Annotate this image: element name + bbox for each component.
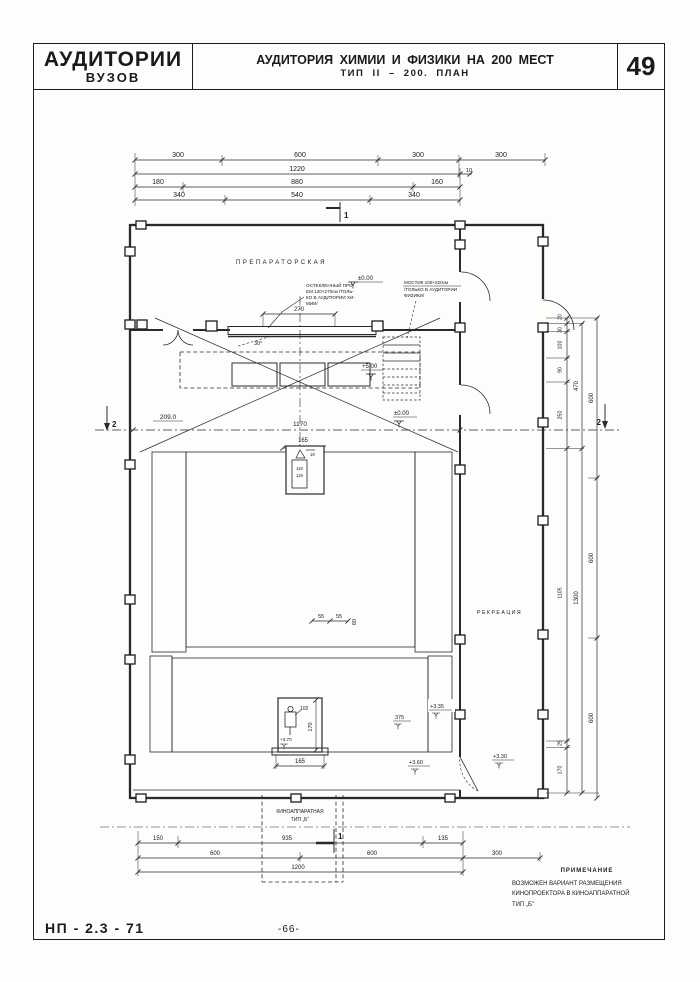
dim-label: 170 [308,722,314,731]
elevation-label: +3.35 [430,704,444,710]
sight-lines [140,296,458,460]
drawing-sheet: АУДИТОРИИ ВУЗОВ АУДИТОРИЯ ХИМИИ И ФИЗИКИ… [0,0,700,982]
room-label-recreation: РЕКРЕАЦИЯ [477,610,522,616]
aisle-steps-left [150,656,172,752]
double-door-leaf [163,330,178,345]
note-line: ТИП „Б” [512,900,662,911]
elevation-label: +3.30 [493,754,507,760]
elevation-plus335: +3.35 [428,699,455,719]
dim-label: 170 [558,766,564,775]
dim-label: 55 [336,614,342,620]
equipment-box: 19 118 119 [286,446,324,494]
walls [130,225,547,798]
note-block: ПРИМЕЧАНИЕ ВОЗМОЖЕН ВАРИАНТ РАЗМЕЩЕНИЯ К… [512,866,662,910]
wall-columns [125,221,548,802]
dim-label: 1170 [293,421,307,428]
dim-label: 470 [574,380,580,391]
dim-label: 160 [431,179,443,186]
dim-label: 150 [153,836,164,842]
dim-label: 1220 [289,166,305,173]
elevation-plus360: +3.60 [408,760,430,775]
dim-label: 135 [438,836,449,842]
door-arc [461,385,490,414]
dim-label: 1300 [574,591,580,605]
equip-label: 119 [296,473,303,478]
dim-label: 1200 [291,865,305,871]
section-marker-1-top: 1 [326,202,349,222]
aisle-steps-right [415,452,452,652]
room-label-prep: ПРЕПАРАТОРСКАЯ [236,260,327,266]
glazed-opening [228,327,376,335]
seating-lower-block: 102 170 +3.70 165 375 [150,656,452,769]
note-line: КИНОПРОЕКТОРА В КИНОАППАРАТНОЙ [512,889,662,900]
elevation-zero-top: ±0.00 [348,276,383,289]
document-code: НП - 2.3 - 71 [45,920,145,936]
dim-label: 165 [298,438,309,444]
angle-annotation: 30° [238,336,272,347]
dim-label: 600 [367,851,378,857]
annotation-line: ОСТЕКЛЕННЫЙ ПРО- [306,281,354,288]
door-arc [461,272,490,301]
double-door-leaf [178,330,193,345]
section-label: 2 [112,420,117,429]
dim-label: 60 [352,619,358,625]
dim-label: 270 [294,307,305,313]
dim-label: 165 [295,759,306,765]
dim-label: 55 [318,614,324,620]
dim-label: 20 [558,314,564,320]
aisle-steps-left [152,452,186,652]
note-title: ПРИМЕЧАНИЕ [512,866,662,877]
section-label: 1 [344,211,349,220]
elevation-375: 375 [392,710,414,729]
elevation-label: +3.60 [409,760,423,766]
annotation-line: МИИ/ [306,301,318,306]
dim-label: 102 [300,706,309,712]
dim-label: 600 [589,392,595,403]
angle-label: 30° [254,341,262,347]
elevation-label: ±0.00 [394,411,410,417]
dim-label: 880 [291,179,303,186]
annotation-line: ЕМ 120×270см /ТОЛЬ- [306,289,354,294]
equip-label: 19 [310,452,315,457]
elevation-plus500: +5.00 [361,364,383,381]
annotation-line: МОСТИК 100×220см [404,280,448,285]
seat-width-dims: 55 55 60 [308,610,358,626]
dim-label: 250 [558,411,564,420]
dim-label: 600 [589,552,595,563]
section-label: 1 [338,832,343,841]
elevation-label: ±0.00 [358,276,374,282]
dim-label: 935 [282,836,293,842]
dim-label: 340 [173,192,185,199]
dim-label: 1105 [558,587,564,598]
dim-label: 540 [291,192,303,199]
top-dimension-lines: 300 600 300 300 1220 10 180 880 160 340 … [132,152,547,206]
dim-label: 340 [408,192,420,199]
dim-label: 300 [492,851,503,857]
dim-label: 300 [412,152,424,159]
stairs-bridge [383,337,420,400]
dim-label: 600 [589,712,595,723]
elevation-label: 375 [395,715,404,721]
seating-upper-block: 19 118 119 55 55 60 [152,446,452,652]
dim-label: 30 [558,327,564,333]
dim-label: 300 [495,152,507,159]
right-dimension-chains: 20 30 100 90 250 1105 25 170 470 1300 60… [546,314,600,801]
floor-plan-drawing: 300 600 300 300 1220 10 180 880 160 340 … [0,0,700,982]
note-line: ВОЗМОЖЕН ВАРИАНТ РАЗМЕЩЕНИЯ [512,879,662,890]
glazed-opening-annotation: ОСТЕКЛЕННЫЙ ПРО- ЕМ 120×270см /ТОЛЬ- КО … [268,281,355,328]
annotation-line: ФИЗИКИ/ [404,293,425,298]
page-number: -66- [278,924,300,935]
dim-label: 209.0 [160,414,177,421]
annotation-line: /ТОЛЬКО В АУДИТОРИИ [404,287,457,292]
equip-label: 118 [296,466,303,471]
elevation-label: +3.70 [280,737,292,742]
dim-label: 90 [558,367,564,373]
dim-label: 10 [466,168,472,174]
dim-label: 300 [172,152,184,159]
dim-label: 180 [152,179,164,186]
projector-niche: 102 170 +3.70 165 [272,697,328,769]
dim-label: 600 [294,152,306,159]
dim-label: 600 [210,851,221,857]
dim-label: 100 [558,341,564,350]
annotation-line: КО В АУДИТОРИИ ХИ- [306,295,355,300]
room-label-cinema: ТИП „Б” [291,817,310,823]
room-label-cinema: КИНОАППАРАТНАЯ [276,809,324,815]
elevation-plus330: +3.30 [492,754,514,769]
